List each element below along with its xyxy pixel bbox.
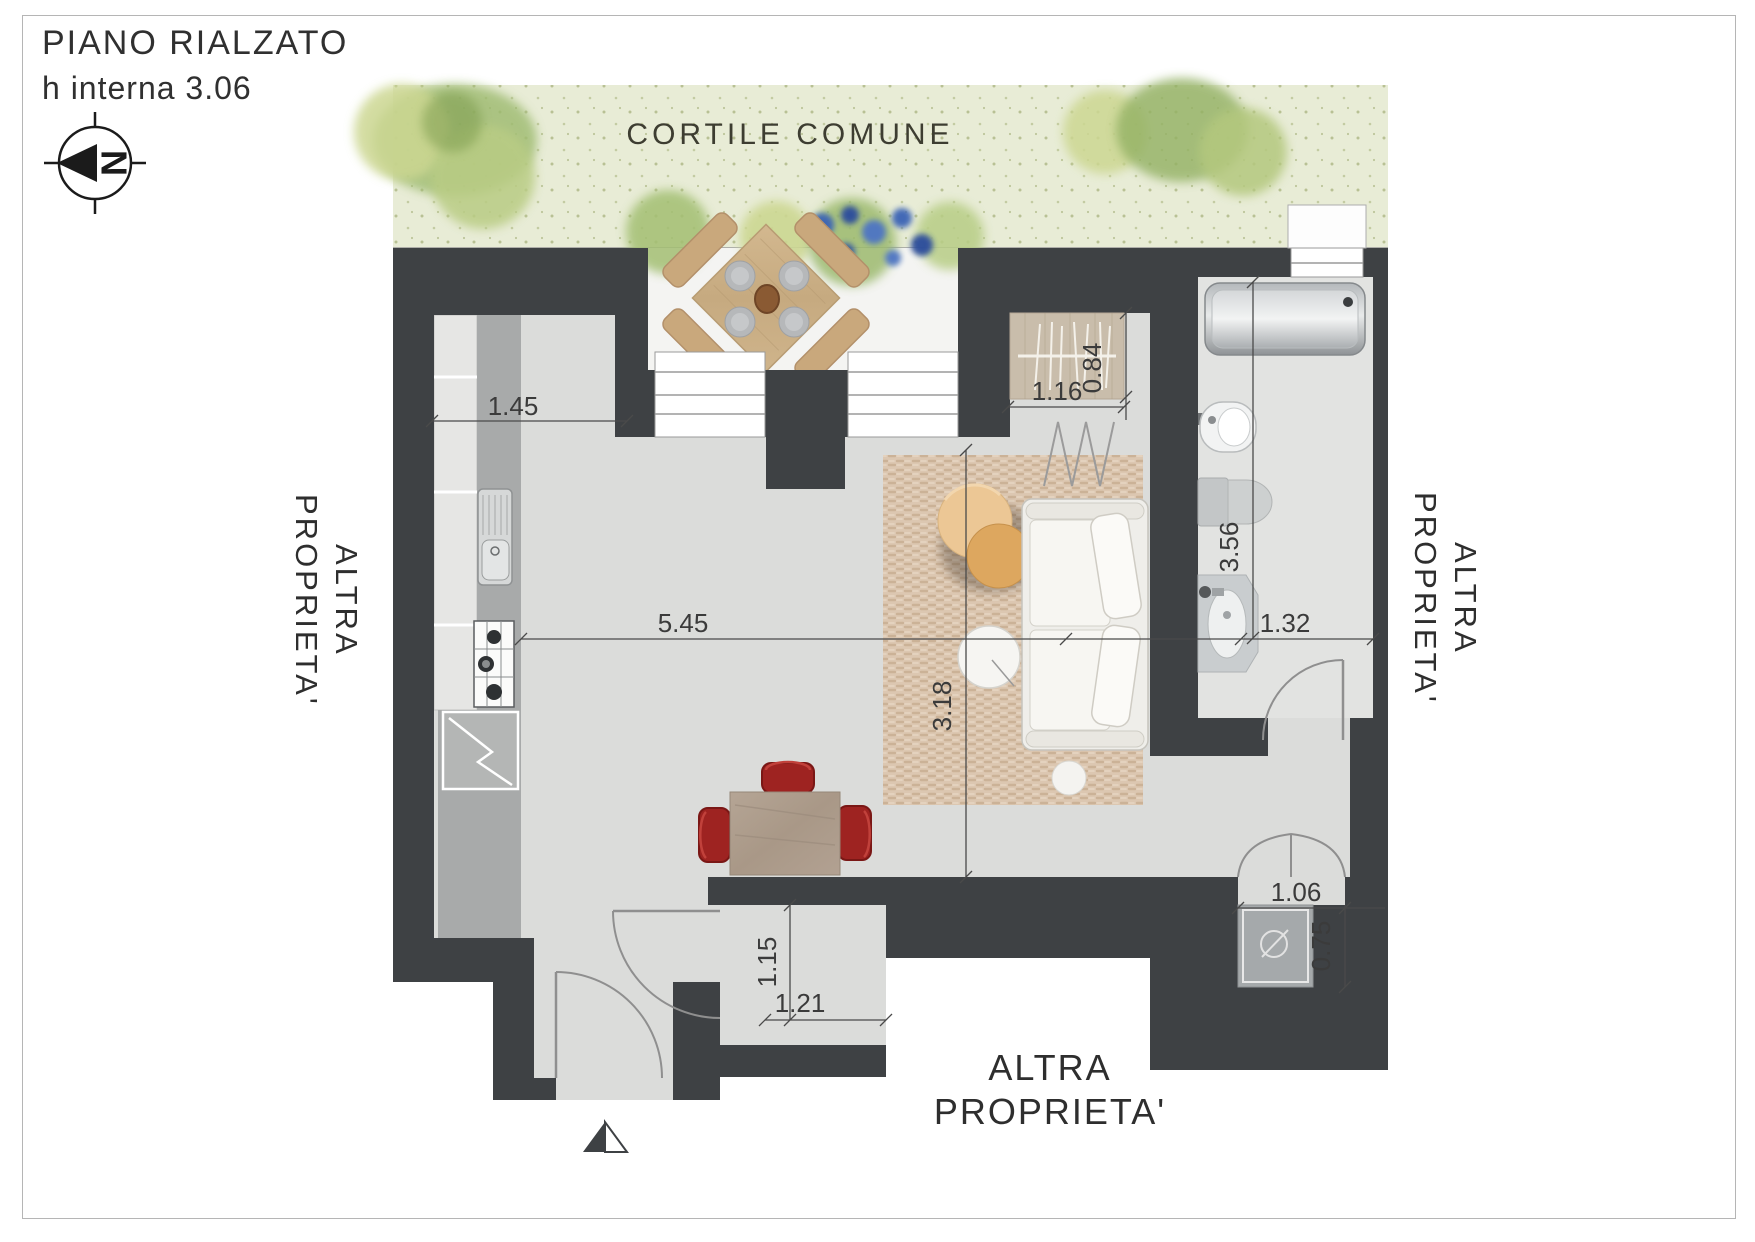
compass-north-label: N <box>94 150 135 176</box>
shower-tray <box>1238 905 1313 987</box>
stove <box>474 621 514 707</box>
floorplan-page: 1.45 5.45 1.32 3.18 1.16 0.84 3.56 1.15 … <box>0 0 1755 1242</box>
fridge-icon <box>443 712 518 789</box>
north-compass-icon: N <box>44 112 146 214</box>
dim-wardrobe-width: 1.16 <box>1032 376 1083 406</box>
window <box>655 352 765 437</box>
dim-hallway-width: 1.21 <box>775 988 826 1018</box>
dim-shower-opening: 1.06 <box>1271 877 1322 907</box>
shower <box>1238 905 1313 987</box>
right-property-line2: PROPRIETA' <box>1405 448 1445 748</box>
courtyard-label: CORTILE COMUNE <box>600 118 980 152</box>
bottom-property-label: ALTRA PROPRIETA' <box>890 1046 1210 1134</box>
floor-plan-svg: 1.45 5.45 1.32 3.18 1.16 0.84 3.56 1.15 … <box>0 0 1755 1242</box>
left-property-label: ALTRA PROPRIETA' <box>286 450 366 750</box>
dim-shower-depth: 0.75 <box>1306 921 1336 972</box>
tree-icon <box>1199 108 1287 196</box>
bottom-property-line1: ALTRA <box>890 1046 1210 1090</box>
window <box>848 352 958 437</box>
dim-hallway-depth: 1.15 <box>752 937 782 988</box>
right-property-label: ALTRA PROPRIETA' <box>1405 448 1485 748</box>
coffee-table <box>958 626 1020 688</box>
kitchen-cabinets <box>434 315 477 710</box>
entrance-marker <box>583 1122 627 1152</box>
bottom-property-line2: PROPRIETA' <box>890 1090 1210 1134</box>
dim-kitchen-top: 1.45 <box>488 391 539 421</box>
bathtub <box>1205 283 1365 355</box>
washbasin <box>1198 575 1258 672</box>
dim-living-width: 5.45 <box>658 608 709 638</box>
left-property-line2: PROPRIETA' <box>286 450 326 750</box>
dim-bathroom-length: 3.56 <box>1214 522 1244 573</box>
toilet <box>1198 478 1272 526</box>
sofa <box>1022 499 1148 750</box>
dim-bathroom-width: 1.32 <box>1260 608 1311 638</box>
left-property-line1: ALTRA <box>326 450 366 750</box>
tree-icon <box>422 92 482 152</box>
pouf <box>1052 761 1086 795</box>
centerpiece <box>755 285 779 313</box>
kitchen-sink <box>478 489 512 585</box>
dining-chair <box>762 763 814 793</box>
dim-living-depth: 3.18 <box>927 681 957 732</box>
bathroom-window <box>1288 205 1366 277</box>
dim-wardrobe-depth: 0.84 <box>1077 343 1107 394</box>
page-subtitle: h interna 3.06 <box>42 70 252 107</box>
dining-table <box>730 792 840 875</box>
bidet <box>1198 402 1256 452</box>
page-title: PIANO RIALZATO <box>42 24 348 63</box>
right-property-line1: ALTRA <box>1445 448 1485 748</box>
